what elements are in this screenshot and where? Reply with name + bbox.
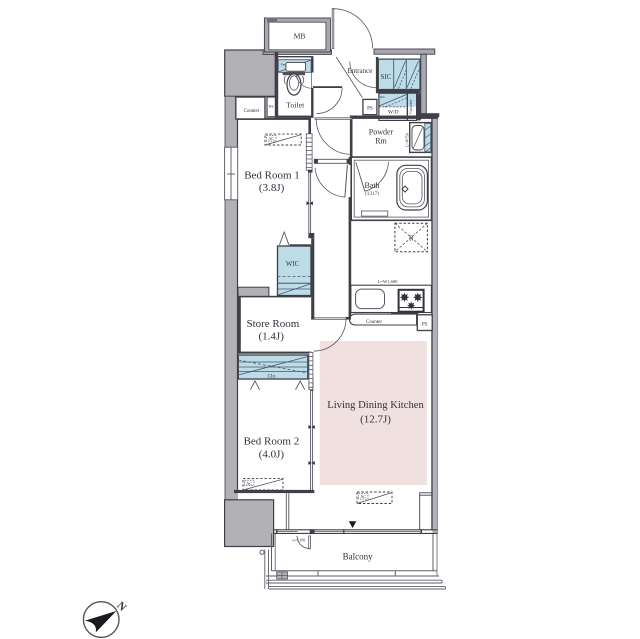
svg-text:Bed Room 2: Bed Room 2 [244,436,300,448]
svg-text:Counter: Counter [366,320,382,325]
svg-text:Toilet: Toilet [286,101,305,110]
svg-text:R: R [409,235,414,243]
svg-text:MB: MB [294,32,306,41]
svg-text:W/D: W/D [388,110,399,116]
svg-text:AC: AC [360,494,366,499]
svg-text:PS: PS [269,104,273,109]
svg-text:Counter: Counter [244,109,260,114]
svg-text:(12.7J): (12.7J) [360,414,391,426]
svg-text:Balcony: Balcony [343,552,373,562]
svg-text:PS: PS [367,107,373,112]
svg-text:Powder: Powder [369,128,394,137]
svg-text:Bed Room 1: Bed Room 1 [244,170,300,182]
svg-text:(4.0J): (4.0J) [259,449,285,461]
svg-text:Rm: Rm [281,63,286,67]
svg-text:Living Dining Kitchen: Living Dining Kitchen [327,400,424,411]
svg-text:(1317): (1317) [365,190,379,197]
svg-text:(3.8J): (3.8J) [259,182,285,194]
svg-text:Rm: Rm [380,95,385,99]
svg-text:Store Room: Store Room [246,318,299,330]
svg-text:L=W750: L=W750 [406,133,410,147]
svg-text:AC: AC [268,136,274,141]
svg-text:(1.4J): (1.4J) [259,331,285,343]
svg-text:Clo.: Clo. [268,374,277,380]
svg-text:WIC: WIC [286,261,300,268]
svg-text:Counter: Counter [408,99,413,114]
svg-text:PS: PS [422,323,428,328]
svg-text:AC: AC [246,481,252,486]
svg-text:Bath: Bath [364,181,379,190]
svg-text:SIC: SIC [381,73,392,81]
svg-text:Rm: Rm [375,137,387,146]
